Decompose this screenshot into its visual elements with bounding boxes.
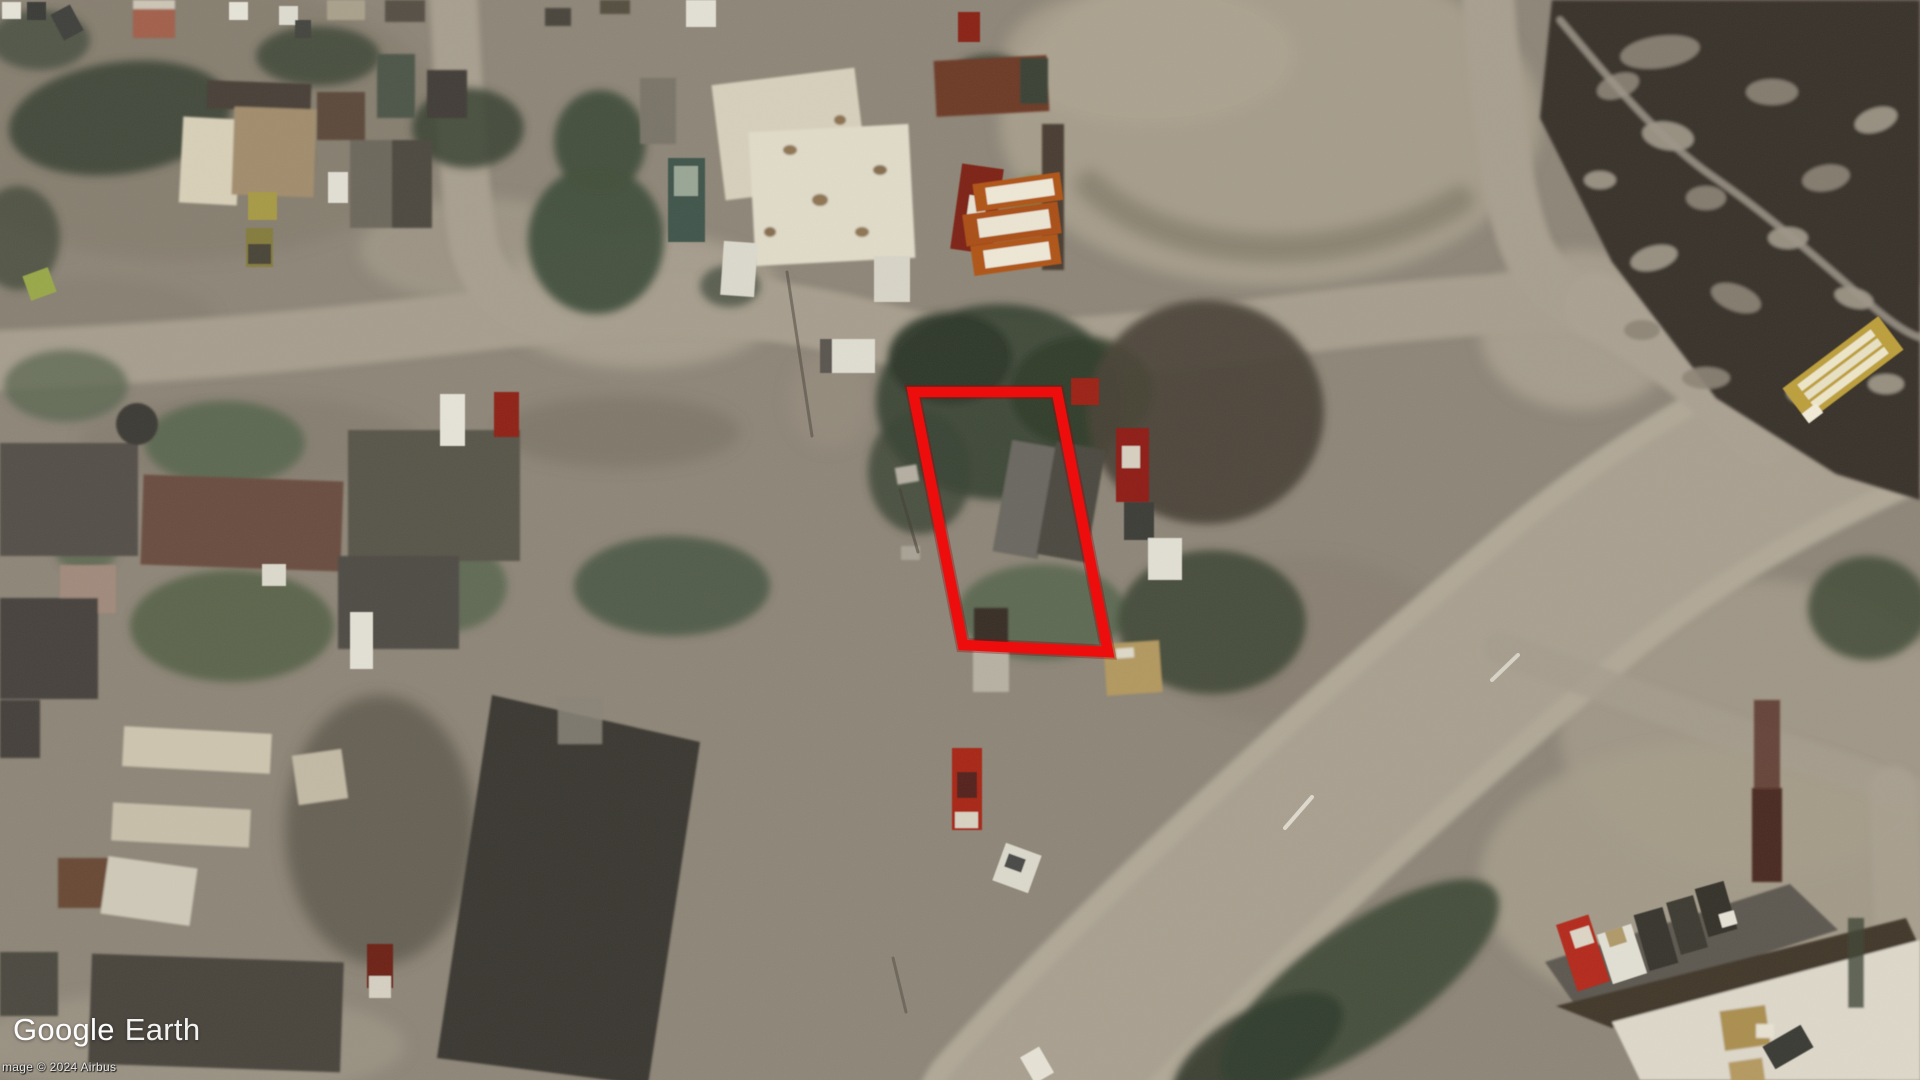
imagery-attribution: mage © 2024 Airbus — [2, 1060, 116, 1074]
google-earth-watermark: Google Earth — [13, 1012, 200, 1048]
satellite-map-canvas[interactable] — [0, 0, 1920, 1080]
photo-grain-overlay — [0, 0, 1920, 1080]
watermark-google: Google — [13, 1012, 115, 1048]
watermark-earth: Earth — [125, 1012, 201, 1048]
google-earth-viewport[interactable]: Google Earth mage © 2024 Airbus — [0, 0, 1920, 1080]
